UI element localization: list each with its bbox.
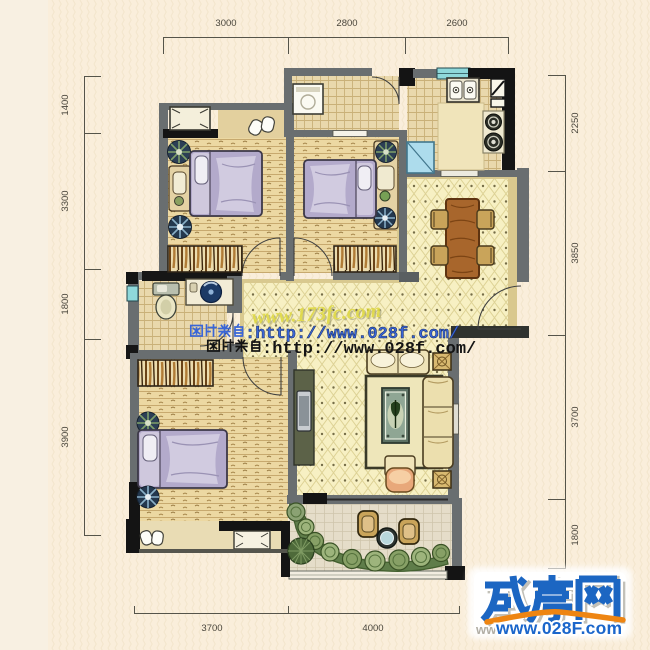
svg-text:1800: 1800 [570,524,581,545]
svg-text:3300: 3300 [60,190,71,211]
svg-text:3000: 3000 [215,18,236,29]
svg-text:3700: 3700 [201,623,222,634]
svg-text:www.028F.com: www.028F.com [495,618,622,638]
svg-text:4000: 4000 [362,623,383,634]
svg-text:1400: 1400 [60,94,71,115]
svg-text:1800: 1800 [60,293,71,314]
svg-text:2250: 2250 [570,112,581,133]
svg-text::http://www.028f.com/: :http://www.028f.com/ [262,340,476,359]
svg-text:3900: 3900 [60,426,71,447]
svg-text:3700: 3700 [570,406,581,427]
svg-text:2600: 2600 [446,18,467,29]
svg-text:3850: 3850 [570,242,581,263]
svg-text:2800: 2800 [336,18,357,29]
